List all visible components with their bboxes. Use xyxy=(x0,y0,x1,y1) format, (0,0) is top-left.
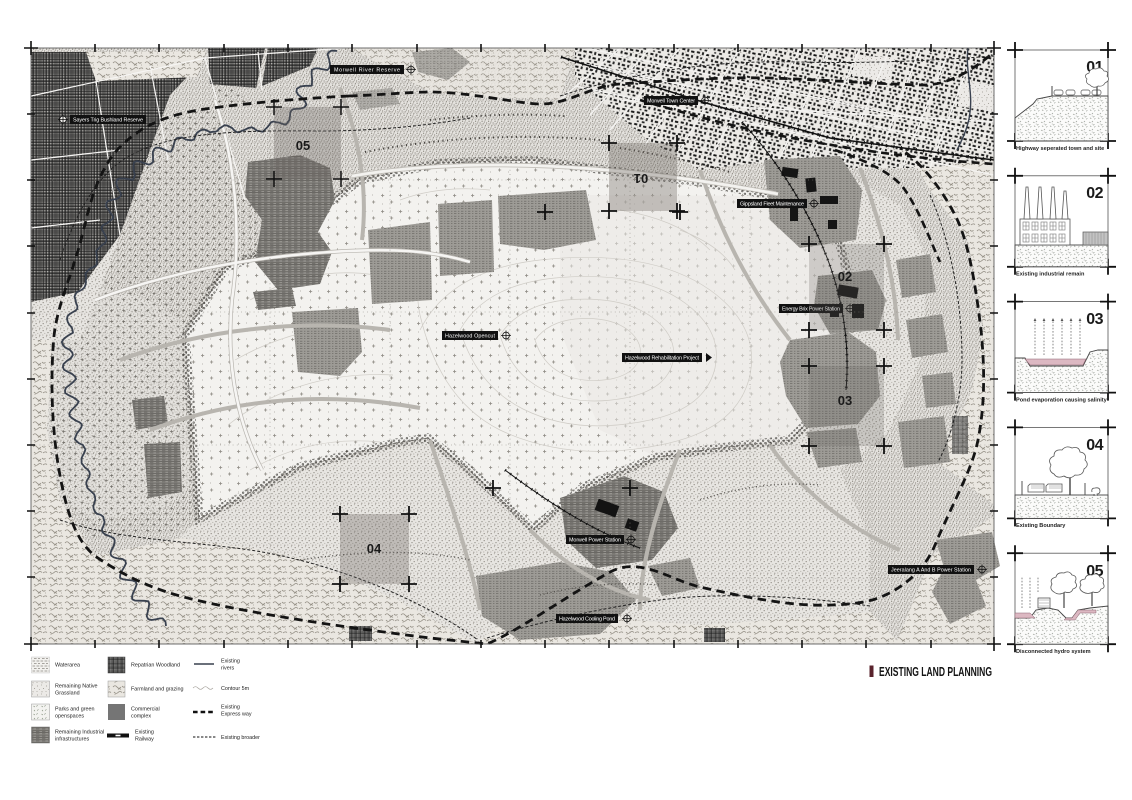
svg-text:Remaining Native: Remaining Native xyxy=(55,684,98,690)
svg-text:Morwell Town Center: Morwell Town Center xyxy=(647,99,695,105)
svg-text:Grassland: Grassland xyxy=(55,691,80,697)
svg-text:Repatrian Woodland: Repatrian Woodland xyxy=(131,663,180,669)
svg-text:Hazelwood Rehabilitation Proje: Hazelwood Rehabilitation Project xyxy=(625,356,700,362)
svg-text:Disconnected hydro system: Disconnected hydro system xyxy=(1016,649,1091,655)
svg-text:Morwell Power Station: Morwell Power Station xyxy=(569,538,621,544)
svg-text:Existing: Existing xyxy=(135,730,154,736)
svg-text:Farmland and grazing: Farmland and grazing xyxy=(131,687,183,693)
svg-text:Existing Boundary: Existing Boundary xyxy=(1016,523,1066,529)
svg-text:rivers: rivers xyxy=(221,666,234,672)
svg-text:Hazelwood Cooling Pond: Hazelwood Cooling Pond xyxy=(559,617,615,623)
svg-text:Jeeralang A And B Power Statio: Jeeralang A And B Power Station xyxy=(891,568,971,574)
svg-text:Highway seperated town and sit: Highway seperated town and site xyxy=(1016,146,1104,152)
svg-text:infrastructures: infrastructures xyxy=(55,737,89,743)
svg-text:Existing industrial remain: Existing industrial remain xyxy=(1016,272,1085,278)
svg-text:Railway: Railway xyxy=(135,737,154,743)
svg-text:Existing: Existing xyxy=(221,659,240,665)
svg-text:02: 02 xyxy=(838,269,852,284)
svg-text:Remaining Industrial: Remaining Industrial xyxy=(55,730,104,736)
svg-text:Parks and green: Parks and green xyxy=(55,707,95,713)
svg-text:complex: complex xyxy=(131,714,151,720)
svg-text:Morwell River Reserve: Morwell River Reserve xyxy=(334,68,400,74)
svg-text:EXISTING LAND PLANNING: EXISTING LAND PLANNING xyxy=(879,664,992,679)
svg-text:01: 01 xyxy=(634,171,648,186)
svg-text:Pond evaporation causing salin: Pond evaporation causing salinity xyxy=(1016,397,1108,403)
svg-text:04: 04 xyxy=(367,541,382,556)
svg-text:Existing broader: Existing broader xyxy=(221,735,260,741)
svg-text:05: 05 xyxy=(296,138,310,153)
svg-text:Commercial: Commercial xyxy=(131,707,160,713)
svg-text:Waterarea: Waterarea xyxy=(55,663,80,669)
svg-text:03: 03 xyxy=(1086,311,1103,328)
svg-text:openspaces: openspaces xyxy=(55,714,84,720)
svg-text:02: 02 xyxy=(1086,185,1103,202)
svg-text:Gippsland Fleet Maintenance: Gippsland Fleet Maintenance xyxy=(740,202,804,208)
svg-text:Sayers Trig Bushland Reserve: Sayers Trig Bushland Reserve xyxy=(73,118,143,124)
svg-text:Existing: Existing xyxy=(221,705,240,711)
svg-text:04: 04 xyxy=(1086,437,1103,454)
svg-text:Contour 5m: Contour 5m xyxy=(221,686,250,692)
svg-text:Hazelwood Opencut: Hazelwood Opencut xyxy=(445,334,496,340)
svg-text:03: 03 xyxy=(838,393,852,408)
svg-text:Express way: Express way xyxy=(221,712,252,718)
